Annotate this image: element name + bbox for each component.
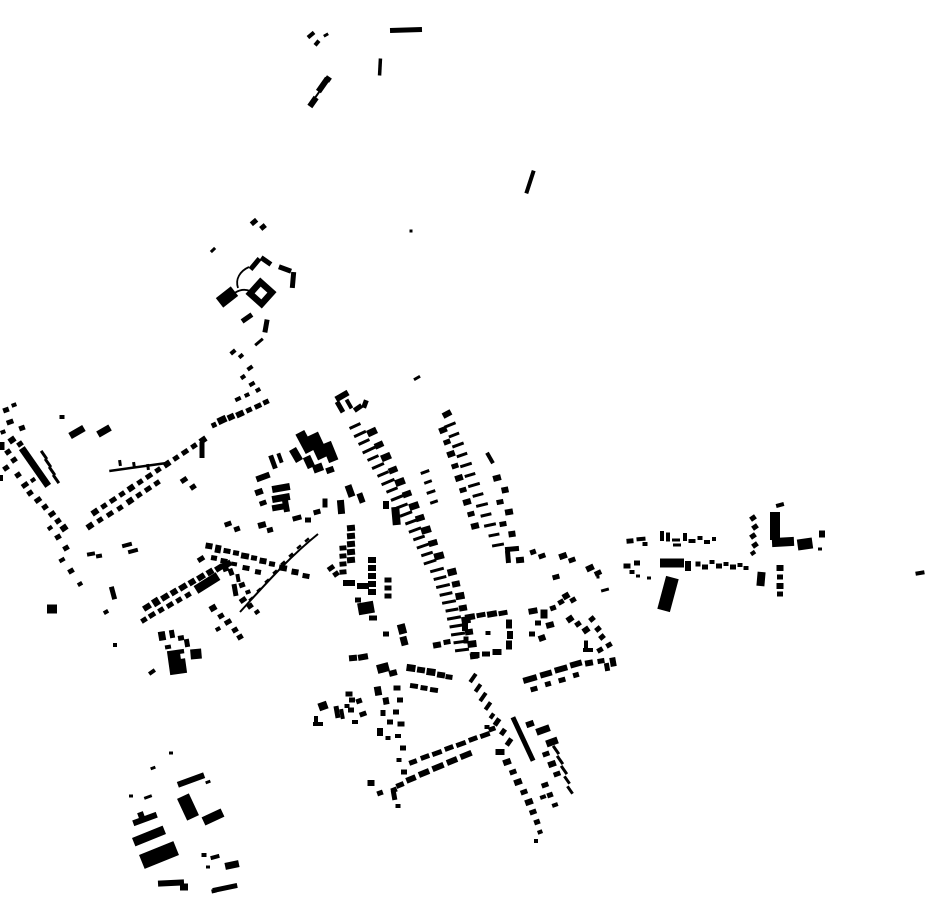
building [460, 462, 472, 469]
building [378, 58, 382, 75]
building [210, 247, 216, 253]
building [224, 520, 232, 527]
building [2, 464, 10, 472]
building [383, 501, 389, 509]
building [545, 621, 554, 629]
building [387, 720, 393, 725]
building [4, 448, 12, 456]
building [506, 620, 512, 629]
building [538, 634, 547, 642]
building [251, 555, 258, 561]
building [390, 27, 422, 33]
building [339, 569, 346, 575]
building [87, 551, 96, 556]
building [217, 612, 225, 619]
building [563, 775, 571, 784]
building [558, 552, 568, 560]
building [420, 753, 430, 761]
building [262, 319, 269, 333]
building [464, 637, 469, 644]
building [710, 560, 715, 564]
wall-line [240, 534, 318, 612]
building [262, 398, 270, 405]
building [506, 641, 512, 650]
building [777, 583, 784, 589]
building [160, 592, 170, 601]
building [529, 808, 537, 815]
building [233, 526, 240, 533]
building [558, 677, 566, 684]
building [446, 450, 456, 458]
building [502, 758, 512, 766]
building [96, 424, 112, 437]
building [572, 672, 579, 678]
building [244, 392, 250, 398]
building [197, 555, 206, 563]
building [455, 740, 466, 748]
building [10, 456, 18, 464]
building [355, 698, 362, 705]
building [406, 664, 416, 672]
building [236, 633, 244, 640]
building [34, 496, 43, 504]
building [169, 752, 173, 755]
building [539, 794, 546, 800]
building [153, 479, 161, 487]
building [672, 539, 680, 542]
building [472, 492, 483, 498]
building [290, 272, 296, 288]
building [541, 781, 549, 788]
building [260, 256, 273, 267]
building [132, 812, 158, 826]
building [433, 551, 444, 560]
building [359, 710, 367, 717]
building [345, 704, 350, 708]
building [158, 631, 166, 641]
building [144, 485, 153, 493]
building [525, 720, 535, 728]
building [302, 573, 310, 579]
building [777, 565, 784, 571]
building [474, 683, 482, 693]
building [416, 542, 429, 549]
building [385, 594, 392, 599]
building [430, 567, 444, 574]
building [368, 589, 376, 595]
building [6, 418, 14, 425]
building [437, 671, 446, 678]
building [716, 564, 722, 569]
building [169, 630, 175, 639]
building [339, 553, 346, 559]
building [349, 655, 357, 662]
building [423, 559, 436, 566]
building [106, 510, 115, 518]
building-footprint-map [0, 0, 930, 924]
building [574, 620, 582, 628]
building [353, 430, 366, 438]
building [539, 669, 552, 678]
building [397, 623, 407, 635]
building [397, 758, 402, 762]
building [399, 636, 408, 647]
building [624, 564, 631, 569]
building [257, 521, 266, 529]
building [210, 854, 220, 860]
building [58, 557, 65, 563]
building [239, 596, 248, 604]
building [552, 745, 560, 755]
building [513, 778, 523, 786]
building [451, 632, 465, 637]
building [397, 698, 403, 703]
building [19, 446, 51, 488]
building [594, 625, 602, 633]
building [231, 584, 238, 597]
building [292, 514, 302, 521]
building [259, 223, 267, 231]
building [777, 575, 783, 580]
building [394, 686, 401, 691]
building [424, 479, 433, 485]
building [184, 639, 190, 648]
building [157, 606, 165, 613]
building [339, 545, 346, 551]
building [335, 401, 345, 414]
building [361, 399, 368, 408]
building [206, 866, 210, 869]
building [371, 462, 384, 470]
building [395, 781, 404, 789]
building [211, 889, 217, 894]
building [420, 469, 429, 475]
building [166, 601, 175, 609]
building [369, 616, 377, 621]
building [184, 591, 192, 598]
building [240, 374, 246, 380]
building [467, 511, 475, 518]
building [408, 526, 421, 533]
building [181, 448, 190, 456]
building [468, 673, 477, 683]
building [175, 596, 183, 603]
building [347, 557, 355, 564]
building [478, 692, 487, 702]
building [689, 539, 696, 543]
building [343, 580, 355, 586]
building [142, 602, 152, 611]
building [451, 462, 459, 469]
building [250, 218, 259, 226]
building [430, 687, 439, 693]
building [0, 429, 6, 434]
building [7, 436, 16, 445]
building [448, 432, 459, 439]
building [604, 663, 610, 672]
building [254, 338, 264, 347]
building [177, 772, 205, 787]
building [382, 697, 389, 705]
building [337, 500, 345, 515]
building [358, 653, 369, 661]
building [255, 387, 261, 393]
building [546, 792, 553, 799]
building [327, 564, 336, 572]
building [381, 710, 386, 716]
building [60, 415, 65, 419]
building [272, 483, 291, 493]
building [459, 487, 467, 494]
building [145, 472, 154, 480]
building [376, 662, 390, 674]
building [549, 605, 556, 612]
building [202, 853, 207, 857]
building [305, 518, 311, 523]
building [44, 458, 52, 468]
building [569, 659, 582, 668]
building [177, 793, 199, 820]
building [208, 604, 217, 613]
building [915, 570, 925, 576]
building [565, 615, 574, 624]
building [48, 466, 56, 476]
building [345, 399, 353, 410]
building [776, 502, 785, 508]
building [385, 586, 392, 591]
building [47, 525, 53, 531]
building [269, 561, 276, 567]
building [205, 542, 213, 549]
building [396, 502, 408, 509]
building [484, 522, 496, 527]
building [172, 454, 180, 462]
building [408, 501, 420, 511]
building [148, 611, 157, 619]
building [724, 562, 729, 566]
building [241, 552, 250, 559]
building [505, 508, 514, 515]
building [347, 533, 355, 540]
building [85, 522, 94, 531]
building [426, 489, 435, 495]
building [0, 442, 5, 450]
building [528, 607, 538, 614]
building [585, 659, 594, 666]
building [190, 442, 198, 450]
building [456, 452, 467, 458]
building [323, 32, 329, 37]
building [246, 365, 253, 372]
building [254, 609, 260, 615]
buildings-layer [0, 27, 925, 894]
building [103, 609, 109, 615]
building [245, 406, 253, 413]
building [314, 39, 321, 46]
building [405, 519, 417, 526]
building [100, 502, 108, 510]
building [386, 736, 391, 740]
building [520, 788, 528, 795]
building [421, 551, 433, 558]
building [413, 375, 421, 381]
building [471, 652, 480, 658]
building [581, 626, 590, 635]
building [393, 710, 399, 715]
building [445, 607, 458, 612]
building [132, 826, 166, 847]
building [462, 623, 468, 631]
building [698, 536, 703, 540]
building [377, 728, 383, 736]
building [505, 737, 514, 746]
building [68, 425, 85, 439]
building [492, 542, 504, 547]
building [352, 720, 358, 724]
building [410, 683, 419, 689]
building [770, 512, 780, 540]
building [447, 615, 461, 620]
building [449, 624, 462, 629]
building [216, 415, 227, 425]
building [136, 478, 144, 486]
building [756, 572, 765, 587]
building [647, 577, 651, 580]
building [738, 563, 743, 567]
building [597, 576, 600, 579]
building [442, 599, 456, 605]
building [238, 353, 244, 359]
building [165, 645, 172, 650]
building [348, 708, 354, 713]
building [398, 722, 405, 727]
building [431, 762, 444, 772]
building [418, 768, 430, 778]
building [712, 537, 716, 541]
building [205, 780, 211, 785]
building [417, 666, 426, 673]
building [556, 755, 564, 765]
building [356, 492, 365, 503]
building [489, 712, 496, 719]
building [150, 766, 156, 771]
building [368, 780, 375, 786]
building [552, 574, 560, 581]
building [459, 604, 468, 611]
building [234, 396, 241, 402]
building [479, 731, 490, 739]
building [468, 482, 480, 488]
building [223, 548, 231, 554]
building [139, 841, 179, 869]
building [229, 349, 236, 356]
building [289, 447, 303, 463]
building [368, 581, 376, 587]
building [30, 477, 36, 483]
building [14, 471, 22, 479]
building [459, 750, 472, 760]
building [313, 509, 321, 516]
building [431, 749, 442, 757]
building [455, 592, 465, 601]
building [538, 552, 546, 559]
building [626, 538, 633, 544]
building [339, 561, 346, 567]
building [609, 657, 616, 667]
building [455, 648, 469, 653]
building [118, 460, 122, 466]
building [323, 499, 328, 508]
building [396, 804, 401, 808]
building [436, 583, 450, 589]
building [52, 474, 60, 484]
building [462, 498, 471, 506]
building [307, 31, 316, 39]
building [508, 531, 516, 538]
building [235, 410, 245, 419]
building [443, 639, 451, 645]
building [259, 499, 267, 506]
building [704, 540, 710, 544]
building [96, 554, 103, 559]
building [601, 588, 610, 593]
building [109, 586, 117, 600]
building [516, 557, 524, 564]
building [54, 533, 62, 540]
building [444, 744, 454, 752]
building [377, 470, 389, 477]
building [597, 658, 605, 664]
building [399, 510, 412, 517]
building [420, 525, 432, 535]
building [537, 829, 543, 834]
building [683, 533, 687, 541]
building [584, 641, 588, 650]
building [11, 402, 17, 407]
building [673, 544, 681, 547]
building [428, 539, 438, 547]
building [588, 615, 596, 623]
building [390, 494, 403, 502]
building [568, 556, 576, 563]
building [180, 884, 188, 891]
building [200, 442, 205, 458]
building [317, 701, 328, 712]
building [634, 561, 640, 566]
building [59, 524, 68, 533]
building [21, 481, 30, 489]
building [501, 486, 509, 493]
building [167, 649, 187, 675]
building [749, 514, 757, 522]
building [347, 549, 355, 556]
building [818, 548, 822, 551]
building [819, 531, 825, 538]
building [585, 564, 595, 573]
building [259, 557, 267, 564]
building [169, 588, 178, 597]
building [125, 497, 134, 506]
building [194, 572, 221, 593]
building [598, 633, 606, 641]
building [493, 649, 502, 655]
building [509, 768, 517, 775]
building [395, 734, 401, 738]
building [314, 716, 318, 724]
building [476, 612, 486, 618]
building [347, 541, 355, 548]
building [140, 616, 148, 623]
